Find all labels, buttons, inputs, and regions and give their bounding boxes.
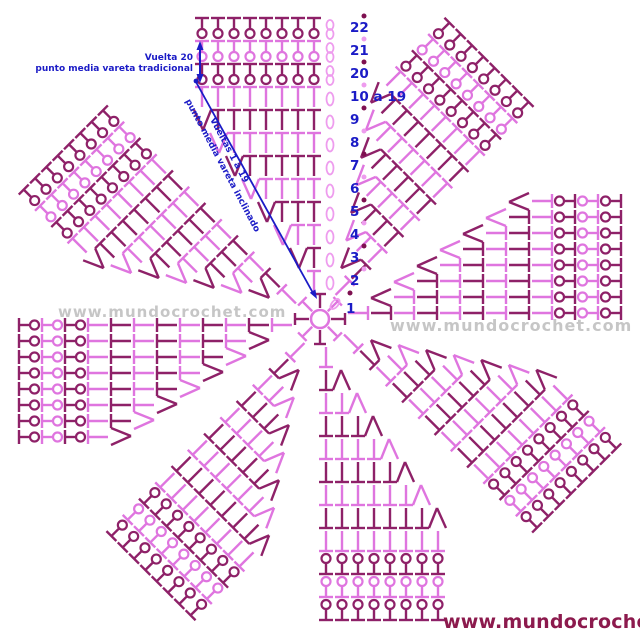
stitch-curl	[246, 75, 255, 84]
stitch-curl	[76, 321, 85, 330]
petal	[348, 193, 621, 320]
hdc-stitch	[474, 465, 488, 479]
stitch-curl	[294, 29, 303, 38]
hdc-stitch	[150, 226, 164, 240]
hdc-stitch	[360, 351, 374, 365]
stitch-curl	[30, 337, 39, 346]
hdc-stitch	[162, 214, 176, 228]
increase-v	[486, 209, 506, 218]
increase-v	[341, 370, 350, 390]
stitch-curl	[386, 554, 395, 563]
hdc-stitch	[200, 208, 214, 222]
hdc-stitch	[167, 242, 181, 256]
round-number: 22	[350, 20, 369, 36]
crochet-spiral-chart: 12345678910 a 19202122 Vuelta 20 punto m…	[0, 0, 640, 640]
round1-stitch	[314, 330, 326, 344]
footer-site-url: www.mundocrochet.com	[443, 611, 640, 633]
turning-chain	[327, 277, 334, 290]
hdc-stitch	[220, 436, 234, 450]
stitch-curl	[434, 554, 443, 563]
hdc-stitch	[377, 367, 391, 381]
stitch-row	[532, 194, 552, 320]
stitch-curl	[555, 245, 564, 254]
stitch-curl	[555, 229, 564, 238]
hdc-stitch	[401, 216, 415, 230]
stitch-curl	[30, 369, 39, 378]
increase-v	[111, 259, 132, 280]
increase-v	[270, 453, 291, 474]
stitch-curl	[601, 245, 610, 254]
hdc-stitch	[168, 175, 182, 189]
hdc-stitch	[420, 388, 434, 402]
stitch-row	[394, 273, 414, 320]
stitch-curl	[418, 577, 427, 586]
stitch-curl	[418, 554, 427, 563]
hdc-stitch	[173, 203, 187, 217]
increase-v	[373, 416, 382, 436]
hdc-stitch	[443, 366, 457, 380]
hdc-stitch	[471, 371, 485, 385]
stitch-curl	[578, 261, 587, 270]
stitch-curl	[30, 385, 39, 394]
hdc-stitch	[388, 138, 402, 152]
stitch-curl	[370, 600, 379, 609]
hdc-stitch	[176, 457, 190, 471]
stitch-curl	[76, 417, 85, 426]
hdc-stitch	[238, 268, 252, 282]
stitch-row	[111, 318, 131, 445]
stitch-curl	[555, 197, 564, 206]
stitch-row	[486, 209, 506, 320]
round-numbers-layer: 12345678910 a 19202122	[329, 14, 406, 318]
round-number: 10 a 19	[350, 89, 406, 105]
stitch-curl	[53, 321, 62, 330]
stitch-curl	[76, 433, 85, 442]
hdc-stitch	[459, 382, 473, 396]
stitch-row	[203, 318, 223, 381]
petal	[319, 347, 446, 620]
hdc-stitch	[111, 232, 125, 246]
hdc-stitch	[204, 452, 218, 466]
hdc-stitch	[215, 463, 229, 477]
stitch-curl	[402, 600, 411, 609]
hdc-stitch	[377, 127, 391, 141]
stitch-row	[172, 452, 276, 556]
increase-v	[138, 264, 159, 285]
stitch-curl	[578, 245, 587, 254]
hdc-stitch	[508, 431, 522, 445]
round-number: 9	[350, 112, 359, 128]
hdc-stitch	[344, 335, 358, 349]
hdc-stitch	[409, 94, 423, 108]
increase-v	[203, 372, 223, 381]
round-dot	[362, 14, 367, 19]
stitch-curl	[601, 277, 610, 286]
hdc-stitch	[388, 356, 402, 370]
stitch-row	[195, 64, 334, 85]
stitch-row	[555, 194, 575, 320]
increase-v	[440, 241, 460, 250]
stitch-row	[319, 370, 350, 390]
watermark-left: www.mundocrochet.com	[58, 303, 286, 321]
hdc-stitch	[238, 486, 252, 500]
increase-v	[285, 370, 306, 391]
hdc-stitch	[100, 243, 114, 257]
hdc-stitch	[503, 403, 517, 417]
increase-v	[371, 334, 392, 355]
increase-v	[226, 356, 246, 365]
hdc-stitch	[209, 424, 223, 438]
hdc-stitch	[157, 187, 171, 201]
hdc-stitch	[384, 232, 398, 246]
hdc-stitch	[399, 149, 413, 163]
round-number: 6	[350, 181, 359, 197]
round-number: 3	[350, 250, 359, 266]
stitch-row	[195, 41, 334, 62]
stitch-row	[319, 485, 430, 505]
hdc-stitch	[199, 480, 213, 494]
stitch-row	[123, 501, 226, 604]
stitch-row	[180, 318, 200, 397]
increase-v	[83, 254, 104, 275]
stitch-curl	[601, 229, 610, 238]
round-number: 21	[350, 43, 369, 59]
increase-v	[111, 436, 131, 445]
stitch-row	[578, 194, 598, 320]
stitch-row	[134, 318, 154, 429]
stitch-curl	[53, 337, 62, 346]
hdc-stitch	[128, 248, 142, 262]
hdc-stitch	[210, 491, 224, 505]
hdc-stitch	[210, 263, 224, 277]
stitch-curl	[230, 75, 239, 84]
stitch-curl	[354, 600, 363, 609]
increase-v	[255, 535, 276, 556]
hdc-stitch	[487, 387, 501, 401]
round-dot	[362, 175, 367, 180]
stitch-curl	[230, 52, 239, 61]
hdc-stitch	[222, 502, 236, 516]
hdc-stitch	[378, 193, 392, 207]
round-dot	[362, 152, 367, 157]
hdc-stitch	[205, 236, 219, 250]
hdc-stitch	[205, 518, 219, 532]
stitch-curl	[262, 52, 271, 61]
increase-v	[180, 388, 200, 397]
stitch-row	[382, 67, 485, 170]
stitch-curl	[578, 293, 587, 302]
hdc-stitch	[367, 182, 381, 196]
round-number: 2	[350, 273, 359, 289]
hdc-stitch	[420, 105, 434, 119]
hdc-stitch	[244, 525, 258, 539]
hdc-stitch	[152, 159, 166, 173]
hdc-stitch	[427, 144, 441, 158]
hdc-stitch	[542, 397, 556, 411]
hdc-stitch	[269, 387, 283, 401]
turning-chain	[327, 162, 334, 175]
stitch-row	[155, 468, 258, 571]
stitch-row	[88, 318, 108, 444]
stitch-curl	[262, 29, 271, 38]
round-dot	[362, 129, 367, 134]
increase-v	[221, 279, 242, 300]
hdc-stitch	[425, 416, 439, 430]
turning-chain	[327, 208, 334, 221]
increase-v	[389, 439, 398, 459]
hdc-stitch	[232, 447, 246, 461]
stitch-curl	[338, 600, 347, 609]
increase-v	[157, 404, 177, 413]
hdc-stitch	[389, 204, 403, 218]
stitch-row	[319, 416, 382, 436]
turning-chain	[327, 116, 334, 129]
hdc-stitch	[239, 552, 253, 566]
hdc-stitch	[368, 248, 382, 262]
hdc-stitch	[394, 177, 408, 191]
hdc-stitch	[458, 448, 472, 462]
round-dot	[362, 37, 367, 42]
stitch-curl	[601, 213, 610, 222]
increase-v	[463, 225, 483, 234]
hdc-stitch	[227, 475, 241, 489]
hdc-stitch	[282, 289, 296, 303]
stitch-curl	[76, 369, 85, 378]
stitch-row	[319, 462, 414, 482]
hdc-stitch	[249, 257, 263, 271]
stitch-curl	[53, 433, 62, 442]
hdc-stitch	[485, 453, 499, 467]
hdc-stitch	[253, 403, 267, 417]
hdc-stitch	[194, 507, 208, 521]
hdc-stitch	[466, 151, 480, 165]
hdc-stitch	[406, 188, 420, 202]
stitch-row	[83, 171, 187, 275]
hdc-stitch	[404, 122, 418, 136]
stitch-curl	[555, 277, 564, 286]
stitch-row	[258, 202, 334, 222]
round-number: 8	[350, 135, 359, 151]
stitch-curl	[578, 197, 587, 206]
stitch-row	[319, 393, 366, 413]
stitch-row	[68, 154, 171, 257]
increase-v	[454, 349, 475, 370]
hdc-stitch	[438, 156, 452, 170]
stitch-row	[601, 194, 621, 320]
stitch-curl	[370, 554, 379, 563]
hdc-stitch	[145, 198, 159, 212]
increase-v	[421, 485, 430, 505]
hdc-stitch	[476, 398, 490, 412]
stitch-curl	[30, 321, 39, 330]
hdc-stitch	[432, 377, 446, 391]
hdc-stitch	[492, 414, 506, 428]
stitch-curl	[434, 577, 443, 586]
stitch-row	[485, 397, 588, 500]
stitch-curl	[53, 385, 62, 394]
stitch-row	[453, 364, 557, 468]
stitch-curl	[76, 401, 85, 410]
hdc-stitch	[383, 166, 397, 180]
turning-chain	[327, 254, 334, 267]
hdc-stitch	[160, 473, 174, 487]
hdc-stitch	[498, 376, 512, 390]
hdc-stitch	[266, 273, 280, 287]
hdc-stitch	[443, 128, 457, 142]
hdc-stitch	[274, 359, 288, 373]
stitch-row	[269, 354, 305, 390]
stitch-curl	[278, 52, 287, 61]
increase-v	[265, 480, 286, 501]
increase-v	[193, 274, 214, 295]
hdc-stitch	[139, 237, 153, 251]
hdc-stitch	[415, 133, 429, 147]
hdc-stitch	[417, 199, 431, 213]
hdc-stitch	[178, 231, 192, 245]
hdc-stitch	[519, 419, 533, 433]
round-dot	[362, 83, 367, 88]
increase-v	[405, 462, 414, 482]
stitch-curl	[278, 29, 287, 38]
stitch-row	[502, 413, 605, 516]
stitch-row	[195, 18, 334, 39]
hdc-stitch	[553, 385, 567, 399]
stitch-row	[35, 122, 138, 225]
stitch-row	[319, 577, 445, 597]
increase-v	[481, 354, 502, 375]
stitch-row	[518, 429, 621, 532]
hdc-stitch	[531, 408, 545, 422]
stitch-row	[417, 257, 437, 320]
watermark-right: www.mundocrochet.com	[390, 316, 632, 335]
round-number: 5	[350, 204, 359, 220]
hdc-stitch	[129, 182, 143, 196]
stitch-curl	[246, 52, 255, 61]
round-dot	[362, 60, 367, 65]
turning-chain	[327, 139, 334, 152]
stitch-row	[42, 318, 62, 444]
stitch-curl	[338, 577, 347, 586]
stitch-curl	[278, 75, 287, 84]
hdc-stitch	[442, 432, 456, 446]
stitch-curl	[601, 261, 610, 270]
hdc-stitch	[409, 400, 423, 414]
stitch-curl	[30, 433, 39, 442]
hdc-stitch	[243, 458, 257, 472]
stitch-curl	[555, 213, 564, 222]
petal	[19, 318, 292, 445]
stitch-row	[319, 347, 333, 367]
round-dot	[362, 221, 367, 226]
stitch-curl	[578, 213, 587, 222]
round-dot	[362, 106, 367, 111]
stitch-curl	[338, 554, 347, 563]
hdc-stitch	[422, 172, 436, 186]
stitch-curl	[214, 29, 223, 38]
hdc-stitch	[123, 221, 137, 235]
stitch-curl	[322, 600, 331, 609]
stitch-row	[249, 318, 269, 349]
stitch-row	[19, 318, 39, 444]
hdc-stitch	[134, 209, 148, 223]
stitch-curl	[322, 577, 331, 586]
hdc-stitch	[497, 442, 511, 456]
hdc-stitch	[372, 154, 386, 168]
stitch-row	[139, 484, 242, 587]
hdc-stitch	[106, 204, 120, 218]
hdc-stitch	[411, 161, 425, 175]
hdc-stitch	[454, 139, 468, 153]
stitch-curl	[76, 385, 85, 394]
stitch-curl	[578, 229, 587, 238]
annotation-vuelta20-line1: Vuelta 20	[145, 53, 193, 63]
increase-v	[357, 393, 366, 413]
hdc-stitch	[453, 421, 467, 435]
hdc-stitch	[254, 470, 268, 484]
hdc-stitch	[264, 414, 278, 428]
stitch-curl	[294, 75, 303, 84]
stitch-curl	[322, 554, 331, 563]
hdc-stitch	[233, 241, 247, 255]
stitch-curl	[198, 29, 207, 38]
stitch-curl	[386, 577, 395, 586]
increase-v	[249, 340, 269, 349]
stitch-curl	[402, 577, 411, 586]
round-number: 20	[350, 66, 369, 82]
stitch-row	[226, 318, 246, 365]
hdc-stitch	[95, 216, 109, 230]
stitch-curl	[370, 577, 379, 586]
hdc-stitch	[437, 405, 451, 419]
hdc-stitch	[259, 442, 273, 456]
hdc-stitch	[373, 221, 387, 235]
stitch-row	[463, 225, 483, 320]
increase-v	[398, 339, 419, 360]
stitch-curl	[418, 600, 427, 609]
increase-v	[275, 425, 296, 446]
stitch-curl	[555, 293, 564, 302]
stitch-curl	[214, 52, 223, 61]
hdc-stitch	[449, 167, 463, 181]
hdc-stitch	[193, 441, 207, 455]
stitch-curl	[53, 353, 62, 362]
stitch-row	[319, 439, 398, 459]
stitch-curl	[601, 293, 610, 302]
center-ring	[311, 310, 329, 328]
hdc-stitch	[404, 372, 418, 386]
hdc-stitch	[249, 497, 263, 511]
hdc-stitch	[73, 238, 87, 252]
hdc-stitch	[415, 361, 429, 375]
turning-chain	[327, 231, 334, 244]
hdc-stitch	[432, 117, 446, 131]
increase-v	[394, 273, 414, 282]
hdc-stitch	[242, 392, 256, 406]
stitch-curl	[214, 75, 223, 84]
hdc-stitch	[514, 392, 528, 406]
hdc-stitch	[233, 513, 247, 527]
stitch-curl	[578, 277, 587, 286]
hdc-stitch	[194, 247, 208, 261]
stitch-curl	[434, 600, 443, 609]
stitch-row	[319, 531, 445, 551]
hdc-stitch	[155, 253, 169, 267]
annotation-vuelta20: Vuelta 20 punto media vareta tradicional	[35, 41, 203, 83]
stitch-curl	[30, 417, 39, 426]
stitch-row	[509, 193, 529, 320]
hdc-stitch	[393, 110, 407, 124]
hdc-stitch	[217, 224, 231, 238]
